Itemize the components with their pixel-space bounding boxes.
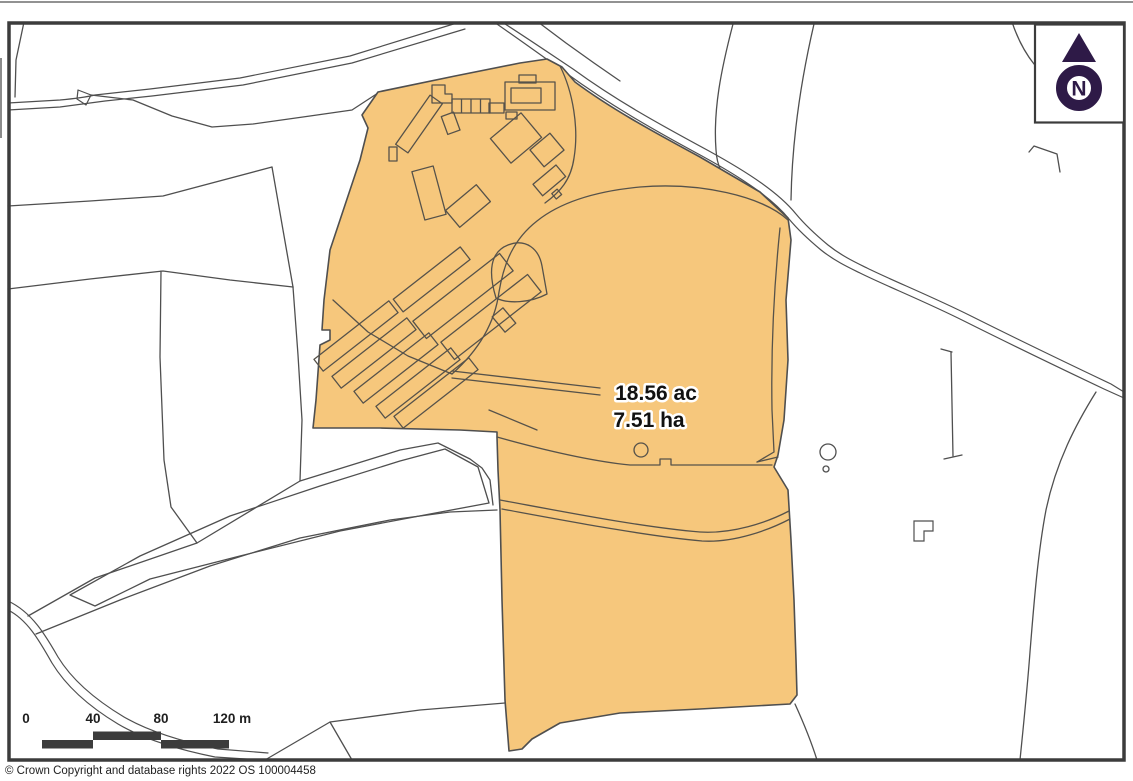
scale-label-0: 0 bbox=[22, 711, 30, 726]
scale-bar: 0 40 80 120 m bbox=[22, 711, 251, 749]
area-hectares-text: 7.51 ha bbox=[613, 409, 685, 432]
map-canvas: 18.56 ac 7.51 ha N 0 40 80 120 m © Crown… bbox=[0, 0, 1133, 781]
scale-bar-segment bbox=[161, 740, 229, 749]
small-building-outline bbox=[914, 521, 933, 541]
north-arrow-box: N bbox=[1035, 25, 1124, 123]
scale-bar-segment bbox=[42, 740, 93, 749]
site-plan-map: 18.56 ac 7.51 ha N 0 40 80 120 m © Crown… bbox=[0, 0, 1133, 781]
scale-label-40: 40 bbox=[85, 711, 100, 726]
north-letter: N bbox=[1071, 78, 1086, 101]
parcel-polygon bbox=[313, 59, 797, 751]
attribution-text: © Crown Copyright and database rights 20… bbox=[5, 765, 316, 777]
scale-bar-segment bbox=[93, 732, 161, 741]
scale-label-120m: 120 m bbox=[213, 711, 251, 726]
scale-label-80: 80 bbox=[153, 711, 168, 726]
area-acres-text: 18.56 ac bbox=[615, 382, 697, 405]
